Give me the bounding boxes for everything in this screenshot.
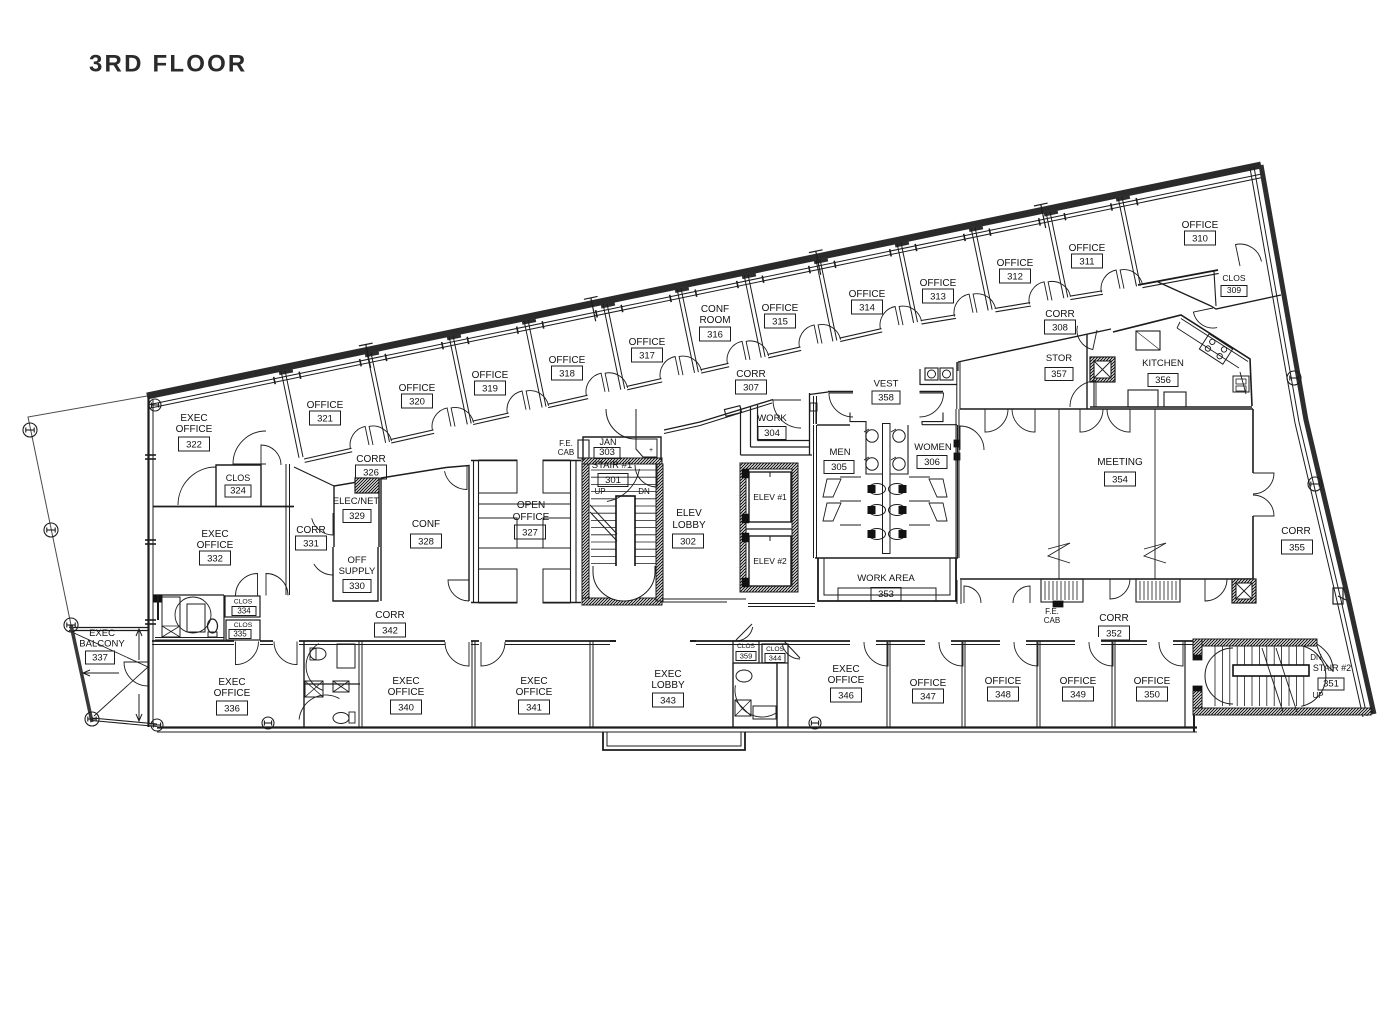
svg-text:322: 322 — [186, 439, 202, 450]
svg-text:355: 355 — [1289, 542, 1305, 553]
svg-text:EXEC: EXEC — [654, 669, 681, 680]
svg-text:302: 302 — [680, 536, 696, 547]
svg-text:JAN: JAN — [599, 437, 616, 447]
svg-text:MEN: MEN — [829, 447, 850, 458]
svg-text:OFFICE: OFFICE — [176, 424, 213, 435]
svg-text:315: 315 — [772, 316, 788, 327]
svg-text:ROOM: ROOM — [699, 315, 730, 326]
svg-text:CLOS: CLOS — [226, 473, 251, 483]
svg-text:EXEC: EXEC — [201, 529, 228, 540]
svg-text:BALCONY: BALCONY — [79, 639, 125, 650]
svg-text:324: 324 — [230, 485, 246, 496]
svg-text:CORR: CORR — [296, 525, 325, 536]
svg-text:344: 344 — [769, 653, 782, 662]
svg-text:326: 326 — [363, 467, 379, 478]
svg-text:318: 318 — [559, 368, 575, 379]
svg-text:310: 310 — [1192, 233, 1208, 244]
svg-text:OFFICE: OFFICE — [399, 383, 436, 394]
svg-text:353: 353 — [878, 589, 894, 600]
svg-text:352: 352 — [1106, 628, 1122, 639]
svg-text:332: 332 — [207, 553, 223, 564]
svg-text:331: 331 — [303, 538, 319, 549]
svg-text:KITCHEN: KITCHEN — [1142, 358, 1184, 369]
svg-text:CAB: CAB — [1044, 616, 1060, 625]
svg-text:317: 317 — [639, 350, 655, 361]
svg-text:OFFICE: OFFICE — [472, 370, 509, 381]
svg-text:OFFICE: OFFICE — [1182, 220, 1219, 231]
svg-text:VEST: VEST — [874, 379, 899, 390]
svg-text:EXEC: EXEC — [832, 664, 859, 675]
svg-text:309: 309 — [1227, 285, 1241, 295]
svg-text:CONF: CONF — [701, 304, 729, 315]
svg-text:WORK: WORK — [757, 413, 787, 424]
svg-text:LOBBY: LOBBY — [651, 680, 685, 691]
svg-text:316: 316 — [707, 329, 723, 340]
svg-text:OPEN: OPEN — [517, 500, 545, 511]
svg-text:330: 330 — [349, 581, 365, 592]
svg-text:OFFICE: OFFICE — [1060, 676, 1097, 687]
svg-text:348: 348 — [995, 689, 1011, 700]
svg-text:OFFICE: OFFICE — [388, 687, 425, 698]
svg-text:3RD FLOOR: 3RD FLOOR — [89, 51, 247, 78]
svg-text:OFFICE: OFFICE — [629, 337, 666, 348]
svg-text:CORR: CORR — [736, 369, 765, 380]
svg-text:OFFICE: OFFICE — [1069, 243, 1106, 254]
svg-text:WOMEN: WOMEN — [914, 442, 952, 453]
svg-text:337: 337 — [92, 652, 108, 663]
svg-text:341: 341 — [526, 702, 542, 713]
svg-text:336: 336 — [224, 703, 240, 714]
svg-text:320: 320 — [409, 396, 425, 407]
svg-text:EXEC: EXEC — [89, 628, 115, 639]
svg-text:CORR: CORR — [1099, 613, 1128, 624]
svg-text:CONF: CONF — [412, 519, 440, 530]
svg-text:307: 307 — [743, 382, 759, 393]
svg-text:OFFICE: OFFICE — [197, 540, 234, 551]
svg-text:347: 347 — [920, 691, 936, 702]
svg-text:ELEV #1: ELEV #1 — [753, 492, 787, 502]
svg-text:314: 314 — [859, 302, 875, 313]
svg-text:OFFICE: OFFICE — [997, 258, 1034, 269]
svg-text:ELEV: ELEV — [676, 508, 702, 519]
svg-text:340: 340 — [398, 702, 414, 713]
svg-text:UP: UP — [1312, 691, 1323, 700]
svg-text:349: 349 — [1070, 689, 1086, 700]
svg-text:OFFICE: OFFICE — [985, 676, 1022, 687]
svg-text:356: 356 — [1155, 375, 1171, 386]
svg-text:303: 303 — [599, 447, 615, 458]
svg-text:EXEC: EXEC — [180, 413, 207, 424]
svg-text:CLOS: CLOS — [737, 643, 755, 650]
svg-text:CORR: CORR — [375, 610, 404, 621]
svg-text:327: 327 — [522, 527, 538, 538]
svg-text:+: + — [649, 447, 653, 454]
svg-text:343: 343 — [660, 695, 676, 706]
svg-text:321: 321 — [317, 413, 333, 424]
svg-text:STOR: STOR — [1046, 353, 1072, 364]
svg-text:335: 335 — [233, 629, 247, 638]
svg-text:EXEC: EXEC — [520, 676, 547, 687]
svg-text:334: 334 — [237, 606, 251, 615]
svg-text:OFFICE: OFFICE — [513, 512, 550, 523]
svg-text:OFFICE: OFFICE — [828, 675, 865, 686]
svg-text:311: 311 — [1079, 256, 1094, 267]
svg-text:DN: DN — [638, 487, 650, 496]
svg-text:OFFICE: OFFICE — [516, 687, 553, 698]
svg-text:SUPPLY: SUPPLY — [339, 566, 376, 577]
svg-text:313: 313 — [930, 291, 946, 302]
svg-text:F.E.: F.E. — [559, 439, 573, 448]
svg-text:CORR: CORR — [1281, 526, 1310, 537]
svg-text:312: 312 — [1007, 271, 1023, 282]
svg-text:CLOS: CLOS — [234, 599, 253, 606]
svg-text:304: 304 — [764, 428, 780, 439]
svg-text:EXEC: EXEC — [218, 677, 245, 688]
svg-text:342: 342 — [382, 625, 398, 636]
svg-text:MEETING: MEETING — [1097, 457, 1143, 468]
svg-text:OFFICE: OFFICE — [1134, 676, 1171, 687]
svg-text:WORK AREA: WORK AREA — [857, 573, 915, 584]
svg-text:OFFICE: OFFICE — [307, 400, 344, 411]
svg-text:CLOS: CLOS — [234, 622, 253, 629]
svg-text:346: 346 — [838, 690, 854, 701]
svg-text:350: 350 — [1144, 689, 1160, 700]
svg-text:OFFICE: OFFICE — [910, 678, 947, 689]
svg-text:CAB: CAB — [558, 448, 574, 457]
svg-text:OFFICE: OFFICE — [920, 278, 957, 289]
svg-text:UP: UP — [594, 487, 605, 496]
svg-text:308: 308 — [1052, 322, 1068, 333]
svg-text:306: 306 — [924, 457, 940, 468]
svg-text:OFFICE: OFFICE — [214, 688, 251, 699]
svg-text:ELEV #2: ELEV #2 — [753, 556, 787, 566]
svg-text:305: 305 — [831, 462, 847, 473]
svg-text:329: 329 — [349, 511, 365, 522]
svg-text:CORR: CORR — [1045, 309, 1074, 320]
svg-text:357: 357 — [1051, 369, 1067, 380]
svg-text:OFFICE: OFFICE — [849, 289, 886, 300]
svg-text:STAIR #1: STAIR #1 — [592, 460, 632, 471]
svg-text:LOBBY: LOBBY — [672, 520, 706, 531]
svg-text:328: 328 — [418, 536, 434, 547]
svg-text:319: 319 — [482, 383, 498, 394]
svg-text:359: 359 — [740, 651, 753, 660]
svg-text:CLOS: CLOS — [1222, 273, 1245, 283]
svg-text:F.E.: F.E. — [1045, 607, 1059, 616]
svg-text:OFFICE: OFFICE — [549, 355, 586, 366]
svg-text:301: 301 — [605, 475, 621, 486]
svg-text:EXEC: EXEC — [392, 676, 419, 687]
svg-text:ELEC/NET: ELEC/NET — [333, 496, 380, 507]
svg-text:OFFICE: OFFICE — [762, 303, 799, 314]
svg-text:354: 354 — [1112, 474, 1128, 485]
svg-text:CORR: CORR — [356, 454, 385, 465]
svg-text:CLOS: CLOS — [766, 646, 784, 653]
svg-text:358: 358 — [878, 392, 894, 403]
svg-text:OFF: OFF — [348, 555, 367, 566]
